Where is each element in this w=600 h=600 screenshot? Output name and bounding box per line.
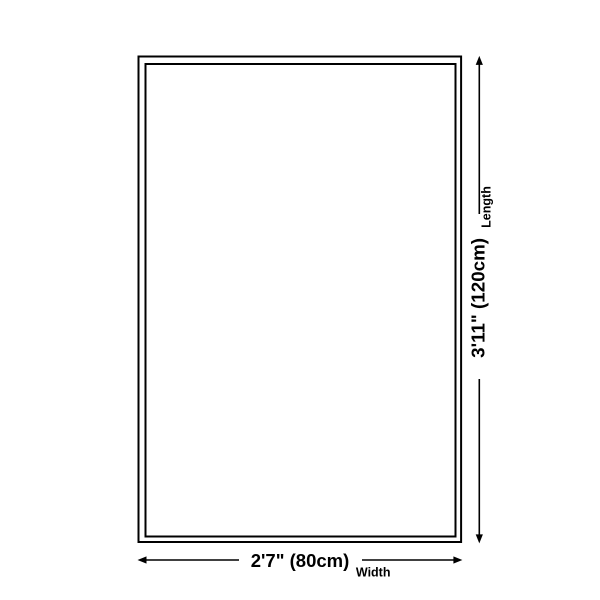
svg-text:3'11" (120cm): 3'11" (120cm) [467,238,488,358]
svg-text:Length: Length [480,186,494,228]
svg-text:Width: Width [356,566,391,580]
svg-text:2'7" (80cm): 2'7" (80cm) [251,550,350,571]
